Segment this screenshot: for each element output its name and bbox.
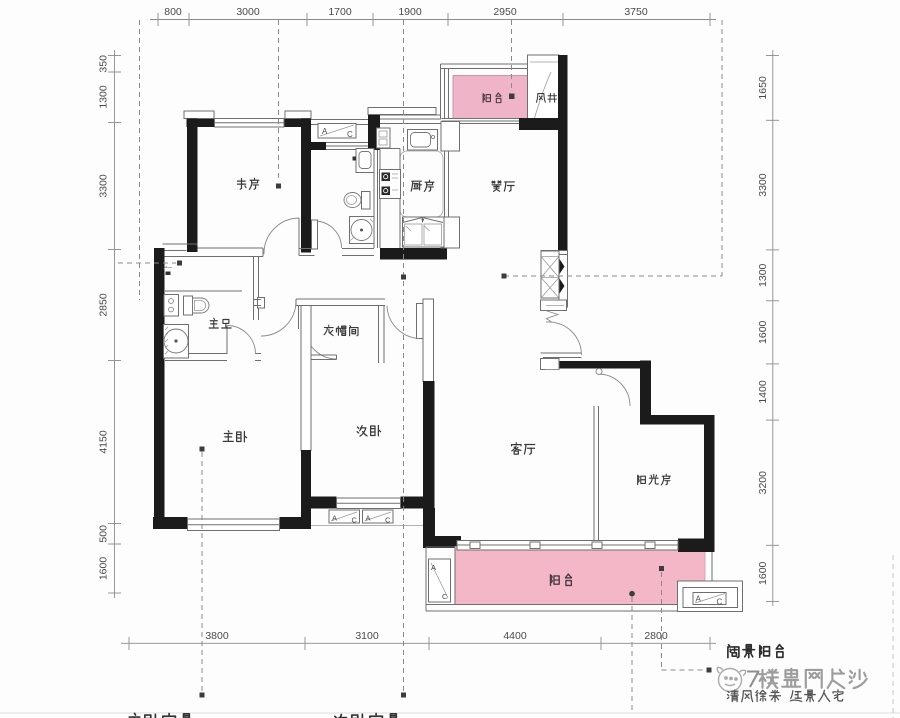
svg-text:350: 350 xyxy=(98,55,110,73)
svg-text:C: C xyxy=(717,598,723,607)
svg-text:C: C xyxy=(442,592,448,601)
svg-text:3100: 3100 xyxy=(355,630,379,642)
svg-text:3000: 3000 xyxy=(236,6,260,18)
svg-text:C: C xyxy=(352,516,358,525)
svg-text:1300: 1300 xyxy=(98,85,110,109)
svg-text:3200: 3200 xyxy=(757,471,769,495)
svg-text:4400: 4400 xyxy=(503,630,527,642)
svg-text:3300: 3300 xyxy=(757,173,769,197)
svg-text:2950: 2950 xyxy=(493,6,517,18)
svg-text:4150: 4150 xyxy=(98,430,110,454)
svg-text:A: A xyxy=(696,595,702,604)
svg-text:1700: 1700 xyxy=(328,6,352,18)
svg-text:1650: 1650 xyxy=(757,76,769,100)
svg-text:1400: 1400 xyxy=(757,380,769,404)
svg-text:500: 500 xyxy=(98,525,110,543)
svg-text:C: C xyxy=(347,130,353,139)
svg-text:C: C xyxy=(385,516,391,525)
svg-text:2800: 2800 xyxy=(644,630,668,642)
svg-text:3300: 3300 xyxy=(98,174,110,198)
svg-text:1600: 1600 xyxy=(757,320,769,344)
svg-text:1300: 1300 xyxy=(757,263,769,287)
svg-text:A: A xyxy=(366,514,371,523)
svg-text:2850: 2850 xyxy=(98,293,110,317)
svg-text:3800: 3800 xyxy=(205,630,229,642)
svg-text:1900: 1900 xyxy=(398,6,422,18)
svg-text:A: A xyxy=(332,514,337,523)
svg-text:3750: 3750 xyxy=(624,6,648,18)
svg-text:1600: 1600 xyxy=(98,557,110,581)
svg-text:1600: 1600 xyxy=(757,561,769,585)
svg-text:A: A xyxy=(322,127,328,136)
svg-text:800: 800 xyxy=(164,6,182,18)
svg-text:A: A xyxy=(431,563,436,572)
